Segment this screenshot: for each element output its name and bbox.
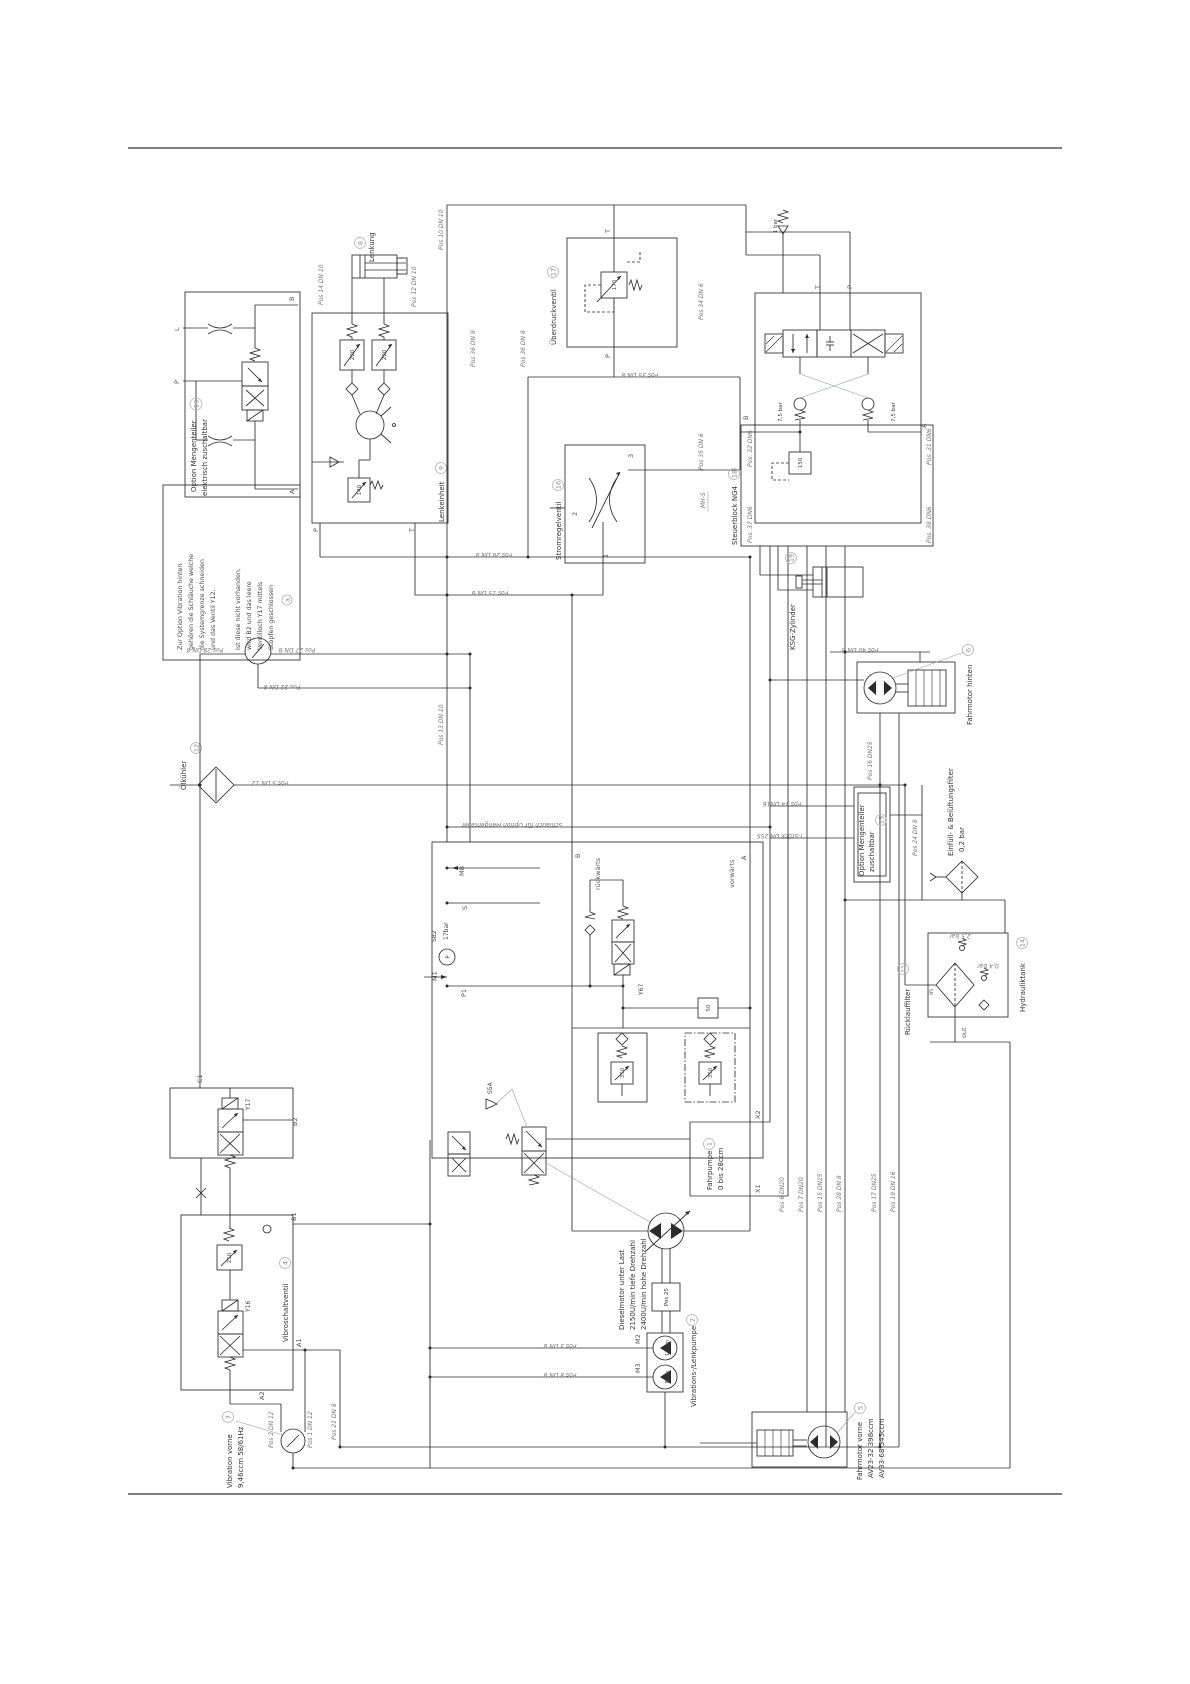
pos-label: Pos 28 DN 8: [186, 646, 223, 653]
relief-setting: 200: [382, 349, 388, 360]
port-label: L: [173, 327, 181, 331]
check-setting: 1 bar: [773, 218, 779, 233]
item-number: 15: [878, 816, 886, 824]
port-label: M2: [634, 1334, 642, 1344]
port-label: 2: [571, 512, 579, 516]
port-label: T: [604, 229, 612, 234]
port-label: A: [920, 423, 928, 428]
ksg-zylinder: 19 KSG-Zylinder: [760, 546, 863, 650]
label-lenkeinheit: Lenkeinheit: [438, 481, 446, 522]
pump-displacement: 8ccm: [665, 1370, 671, 1383]
item-number: 4: [282, 1261, 290, 1265]
pump-displacement: 14ccm: [665, 1340, 671, 1356]
pos-label: Pos. 31 DN6: [926, 428, 933, 465]
port-label: in: [927, 989, 935, 995]
port-label: P: [604, 354, 612, 358]
note-box: Zur Option Vibration hinten gehören die …: [163, 485, 470, 1088]
label-steuerblock: Steuerblock NG4: [731, 485, 739, 545]
pos-label: Pos 27 DN 8: [278, 646, 315, 653]
gauge-letter: P: [446, 955, 452, 959]
gauge-tag: SB2: [431, 930, 438, 942]
label-fahrmotor-vorne-spec1: AV23-32 398ccm: [867, 1418, 875, 1478]
pos-label: Pos 28 DN 8: [836, 1175, 843, 1212]
port-label: MB: [458, 866, 466, 876]
label-vibrations-lenkpumpe: Vibrations-/Lenkpumpe: [690, 1326, 698, 1407]
relief-setting: 170: [612, 279, 618, 290]
pos-label: Pos 36 DN 8: [520, 330, 527, 367]
relief-setting: 210: [227, 1252, 233, 1263]
item-number: 16: [555, 481, 563, 489]
port-label: B2: [291, 1117, 299, 1126]
item-number: 19: [788, 554, 796, 562]
oelkuehler: 12 Ölkühler Pos 5 DN 12: [170, 743, 905, 804]
port-label: A2: [258, 1391, 266, 1400]
valve-tag: Y67: [638, 984, 645, 996]
label-fahrpumpe-disp: 0 bis 28ccm: [717, 1147, 725, 1190]
note-line: Ist diese nicht vorhanden,: [235, 568, 242, 650]
pos-label: MH-S: [700, 492, 707, 508]
lenkeinheit-block: 200 200 140 P T 9 Lenkeinheit: [312, 313, 448, 595]
item-number: 6: [965, 648, 973, 652]
label-ruecklauffilter: Rücklauffilter: [904, 989, 912, 1035]
label-ueberdruckventil: Überdruckventil: [549, 289, 558, 345]
port-label: B: [288, 297, 296, 301]
note-line: Zur Option Vibration hinten: [177, 564, 184, 650]
label-vibration-vorne: Vibration vorne: [226, 1434, 234, 1488]
steuerblock-ng4: T P 7,5 bar 7,5 bar 150 B A Pos. 32 DN6 …: [729, 255, 934, 546]
label-lenkung: Lenkung: [368, 232, 376, 262]
pos-label: Pos 15 DN 8: [471, 589, 508, 596]
port-label: P: [173, 380, 181, 384]
direction-label: rückwärts: [594, 857, 602, 890]
port-label: X2: [754, 1110, 762, 1119]
port-label: M3: [634, 1363, 642, 1373]
pos-label: Pos 3 DN 8: [543, 1342, 576, 1349]
pos-label: Pos. 32 DN6: [747, 430, 754, 467]
port-label: P1: [460, 989, 468, 997]
relief-setting: 140: [357, 484, 363, 495]
pos-label: T-Stück DN 25S: [757, 832, 803, 839]
port-label: S: [461, 906, 469, 910]
label-fahrmotor-hinten: Fahrmotor hinten: [966, 665, 974, 725]
port-label: P: [312, 528, 320, 532]
pos-label: Schlauch für Option Mengenteiler: [461, 821, 562, 828]
pos-label: Pos 40 DN 8: [841, 646, 878, 653]
port-label: out: [960, 1027, 968, 1038]
port-label: B: [574, 854, 582, 858]
item-number: 12: [193, 744, 201, 752]
item-number: 14: [1019, 939, 1027, 947]
pos-label: Pos 8 DN 8: [543, 1371, 576, 1378]
filter-tank-group: Einfüll- & Belüftungsfilter 0,2 bar 2,5 …: [845, 768, 1028, 1042]
item-number: 13: [193, 400, 201, 408]
pos-label: Pos 35 DN 8: [621, 371, 658, 378]
relief-setting: 150: [798, 457, 804, 468]
pos-label: Pos 14 DN16: [763, 800, 802, 807]
label-ksg-zylinder: KSG-Zylinder: [789, 604, 797, 650]
label-hydrauliktank: Hydrauliktank: [1019, 962, 1027, 1012]
port-label: T: [814, 285, 822, 290]
item-number: 5: [857, 1406, 865, 1410]
item-number: 18: [731, 470, 739, 478]
item-number: 7: [225, 1415, 233, 1419]
hydraulic-schematic: L P B A 13 Option Mengenteiler elektrisc…: [0, 0, 1190, 1684]
check-setting: 7,5 bar: [778, 401, 784, 421]
port-label: A: [288, 489, 296, 494]
pos-label: Pos 24 DN 8: [912, 819, 919, 856]
note-badge: a: [284, 598, 292, 602]
pos-label: Pos. 38 DN6: [926, 506, 933, 543]
label-dieselmotor3: 2400U/min hohe Drehzahl: [640, 1238, 648, 1330]
note-line: gehören die Schläuche welche: [188, 554, 195, 650]
valve-tag: Y16: [245, 1301, 252, 1313]
label-einfuellfilter-val: 0,2 bar: [958, 827, 966, 852]
port-label: A: [740, 855, 748, 860]
relief-setting: 200: [350, 349, 356, 360]
pos-label: Pos 1 DN 12: [307, 1411, 314, 1448]
pos-label: Pos 5 DN 12: [251, 779, 288, 786]
pos-label: Pos 35 DN 6: [698, 433, 705, 470]
dieselmotor-vlp: Pos 25 Dieselmotor unter Last 2150U/min …: [430, 1238, 698, 1447]
port-label: X1: [754, 1184, 762, 1193]
stromregelventil-block: 2 3 1 16 Stromregelventil MH-S: [550, 445, 740, 595]
pos-label: Pos 28 DN 8: [475, 551, 512, 558]
pos-label: Pos 12 DN 10: [411, 266, 418, 307]
label-option-mengenteiler-13b: elektrisch zuschaltbar: [201, 419, 209, 496]
pos-label: Pos 34 DN 6: [698, 283, 705, 320]
lever-tag: S5A: [487, 1081, 494, 1094]
item-number: 2: [689, 1318, 697, 1322]
option-mengenteiler-13-block: L P B A 13 Option Mengenteiler elektrisc…: [173, 292, 300, 497]
schematic-page: L P B A 13 Option Mengenteiler elektrisc…: [0, 0, 1190, 1684]
option-mengenteiler-15-block: 15 Option Mengenteiler zuschaltbar Pos 1…: [757, 785, 922, 900]
item-number: 1: [706, 1142, 714, 1146]
relief-setting: 350: [708, 1067, 714, 1078]
port-label: B: [742, 416, 750, 420]
pos-label: Pos 19 DN 16: [890, 1171, 897, 1212]
label-option-mengenteiler-15b: zuschaltbar: [868, 831, 876, 872]
pos-box: Pos 25: [664, 1287, 670, 1306]
port-label: T: [408, 528, 416, 533]
port-label: P: [846, 285, 854, 289]
fahrpumpe-block: MB S P1 M1 P SB2 17bar B rückwärts vorwä…: [424, 842, 788, 1251]
port-label: A1: [295, 1338, 303, 1347]
relief-setting: 50: [706, 1004, 712, 1011]
pos-label: Pos 17 DN25: [871, 1173, 878, 1212]
pos-label: Pos 2 DN 12: [268, 1411, 275, 1448]
item-number: 11: [900, 965, 908, 973]
pos-label: Pos 22 DN 8: [263, 683, 300, 690]
port-label: 3: [627, 454, 635, 458]
return-lines: Pos 28 DN 8 Pos 15 DN 8 Schlauch für Opt…: [320, 551, 770, 1231]
note-line: die Systemgrenze schneiden: [199, 559, 206, 650]
bypass-setting: 0,4 bar: [977, 962, 999, 969]
note-line: Ventilloch Y17 mittels: [257, 582, 264, 650]
valve-tag: Y17: [245, 1099, 252, 1111]
pos-label: Pos 21 DN 8: [331, 1403, 338, 1440]
label-vibration-vorne-spec: 9,46ccm 58/61Hz: [237, 1426, 245, 1488]
pos-label: Pos 14 DN 10: [318, 264, 325, 305]
pos-label: Pos 16 DN25: [867, 741, 874, 780]
item-number: 9: [438, 466, 446, 470]
label-dieselmotor2: 2150U/min tiefe Drehzahl: [629, 1240, 637, 1330]
gauge-value: 17bar: [443, 922, 450, 940]
relief-setting: 350: [620, 1067, 626, 1078]
port-label: B1: [290, 1212, 298, 1221]
label-fahrmotor-vorne: Fahrmotor vorne: [856, 1422, 864, 1480]
label-fahrpumpe: Fahrpumpe: [706, 1151, 714, 1190]
label-dieselmotor1: Dieselmotor unter Last: [618, 1249, 626, 1330]
lenkung-cylinder: 8 Lenkung Pos 14 DN 10 Pos 12 DN 10: [318, 232, 418, 313]
pos-label: Pos 13 DN 10: [438, 704, 445, 745]
port-label: M1: [431, 971, 439, 981]
vibroschaltventil-block: Y17 C1 B2 210 4 Vibroschaltventil Y16 B1…: [170, 1074, 430, 1488]
item-number: 17: [550, 268, 558, 276]
port-label: C1: [196, 1074, 204, 1083]
pos-label: Pos 36 DN 8: [470, 330, 477, 367]
item-number: 8: [357, 241, 365, 245]
pos-label: Pos 10 DN 10: [438, 209, 445, 250]
label-oelkuehler: Ölkühler: [179, 761, 188, 790]
label-einfuellfilter: Einfüll- & Belüftungsfilter: [947, 768, 955, 856]
label-stromregelventil: Stromregelventil: [555, 502, 563, 560]
label-vibroschaltventil: Vibroschaltventil: [282, 1283, 290, 1342]
note-line: und das Ventil Y12.: [210, 589, 217, 650]
pos-label: Pos. 37 DN6: [747, 506, 754, 543]
pos-label: Pos 6 DN20: [779, 1177, 786, 1212]
pos-label: Pos 15 DN25: [817, 1173, 824, 1212]
label-option-mengenteiler-13: Option Mengenteiler: [190, 420, 198, 492]
note-line: Stopfen geschlossen: [268, 585, 275, 650]
junction-dots: [199, 431, 907, 1470]
direction-label: vorwärts: [728, 859, 736, 888]
pos-label: Pos 7 DN20: [798, 1177, 805, 1212]
check-setting: 7,5 bar: [891, 401, 897, 421]
bypass-setting: 2,5 bar: [949, 932, 971, 939]
fahrmotor-hinten: 6 Fahrmotor hinten Pos 40 DN 8 Pos 16 DN…: [770, 645, 974, 781]
label-option-mengenteiler-15: Option Mengenteiler: [858, 804, 866, 876]
